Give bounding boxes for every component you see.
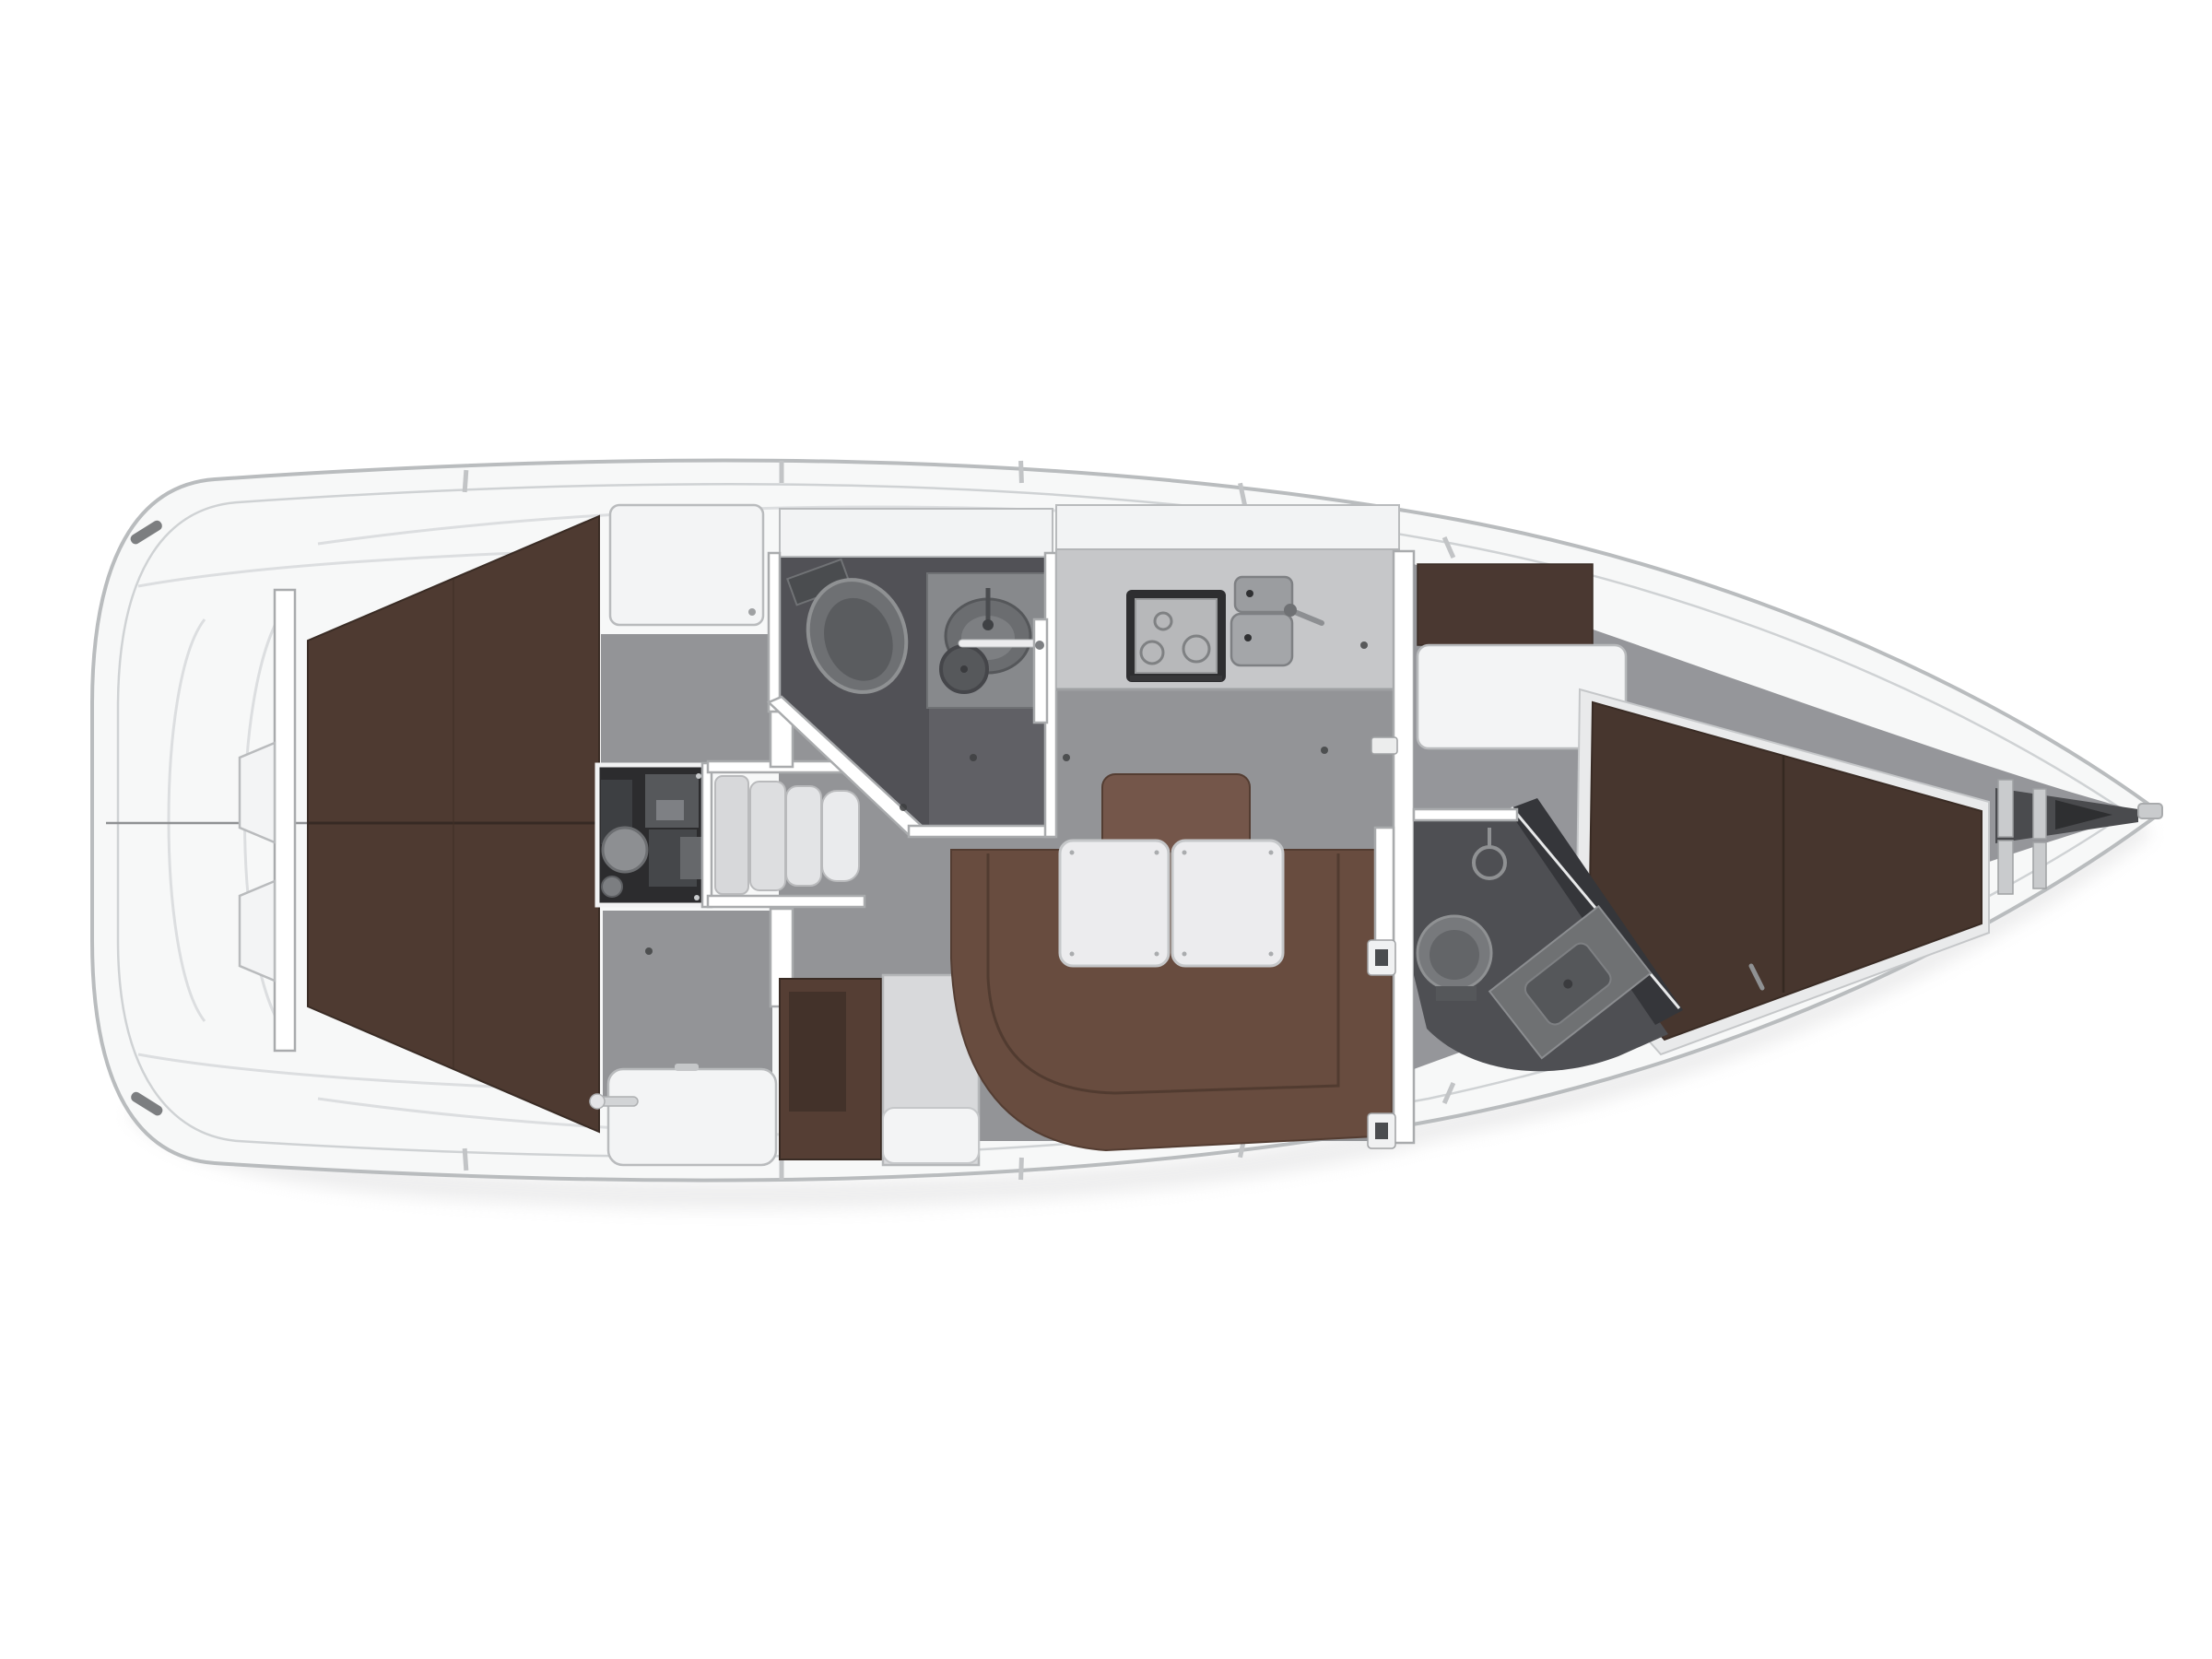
stove-potholder-rail	[1130, 676, 1222, 681]
engine-bolt-icon	[694, 895, 700, 900]
aft-head-counter	[780, 509, 1053, 557]
yacht-floor-plan	[0, 0, 2212, 1659]
table-screw	[1155, 851, 1159, 855]
engine-pulley-icon	[602, 877, 622, 897]
fridge-inner-panel	[789, 992, 846, 1112]
rudder-post-bracket-top	[240, 743, 275, 842]
rudder-post-bracket-bottom	[240, 881, 275, 981]
galley-shelf	[1056, 505, 1399, 549]
stair-tread-1	[715, 776, 748, 894]
aft-head-wall-left	[769, 553, 780, 712]
drain-dot	[960, 665, 968, 673]
stair-tread-4	[822, 791, 859, 881]
floor-latch-dot	[1321, 747, 1328, 754]
table-screw	[1155, 952, 1159, 957]
stairs-bottom-rail	[708, 896, 865, 907]
table-screw	[1269, 952, 1274, 957]
stanchion-icon	[1018, 1158, 1024, 1180]
sink-small	[1235, 577, 1292, 612]
door-hinge-bottom	[1368, 1113, 1395, 1148]
nav-cabinet-front	[883, 1108, 979, 1163]
stowage-locker-top	[610, 505, 763, 625]
stowage-locker-bottom	[608, 1069, 776, 1165]
stanchion-icon	[780, 461, 784, 483]
table-screw	[1182, 952, 1187, 957]
aft-head-door	[1034, 619, 1047, 723]
engine-bolt-icon	[696, 773, 701, 779]
table-screw	[1070, 952, 1075, 957]
engine-part	[680, 837, 704, 879]
faucet-pivot	[1284, 604, 1297, 617]
sink-large	[1231, 614, 1292, 665]
engine-flywheel-icon	[603, 828, 647, 872]
stair-tread-2	[750, 782, 785, 890]
faucet-base	[982, 619, 994, 630]
stairs-left-rail	[702, 763, 712, 907]
bow-partition	[1998, 841, 2013, 894]
floor-aft-upper	[601, 634, 772, 765]
floor-latch-dot	[970, 754, 977, 761]
floor-plan-stage	[0, 0, 2212, 1659]
door-handle-icon	[1035, 641, 1044, 650]
table-leaf	[1172, 841, 1283, 966]
shower-rail	[959, 640, 1040, 647]
locker-latch-icon	[675, 1064, 699, 1071]
table-screw	[1269, 851, 1274, 855]
folding-table-right	[1172, 841, 1283, 966]
floor-latch-dot	[900, 804, 907, 811]
door-latch	[1371, 737, 1397, 754]
table-screw	[1182, 851, 1187, 855]
stanchion-icon	[1018, 461, 1024, 483]
hinge-slot	[1375, 949, 1388, 966]
sink-drain-icon	[1244, 634, 1252, 641]
bow-fitting	[2138, 804, 2162, 818]
floor-latch-dot	[1360, 641, 1368, 649]
locker-latch-icon	[748, 608, 756, 616]
aft-head-wall-bottom	[909, 826, 1054, 837]
engine-part	[656, 800, 684, 820]
toilet-forward-base	[1436, 986, 1477, 1001]
table-screw	[1070, 851, 1075, 855]
deck-handle-knob	[590, 1094, 605, 1109]
door-hinge-top	[1368, 940, 1395, 975]
folding-table-left	[1060, 841, 1169, 966]
bow-partition	[2033, 842, 2046, 888]
bow-partition	[1998, 780, 2013, 837]
sink-drain-icon	[1246, 590, 1253, 597]
galley-counter	[1056, 549, 1399, 689]
hinge-slot	[1375, 1123, 1388, 1139]
galley	[1056, 505, 1399, 689]
floor-latch-dot	[645, 947, 653, 955]
toilet-forward-seat	[1430, 930, 1479, 980]
stanchion-icon	[780, 1158, 784, 1180]
shelf-band	[1418, 564, 1593, 645]
main-bulkhead	[1394, 551, 1414, 1143]
table-leaf	[1060, 841, 1169, 966]
aft-bulkhead	[275, 590, 295, 1051]
forward-head-wall-top	[1414, 809, 1517, 820]
bow-partition	[2033, 789, 2046, 839]
floor-latch-dot	[1063, 754, 1070, 761]
engine-compartment	[597, 765, 708, 905]
stair-tread-3	[786, 786, 821, 886]
shower-zone	[929, 704, 1045, 826]
